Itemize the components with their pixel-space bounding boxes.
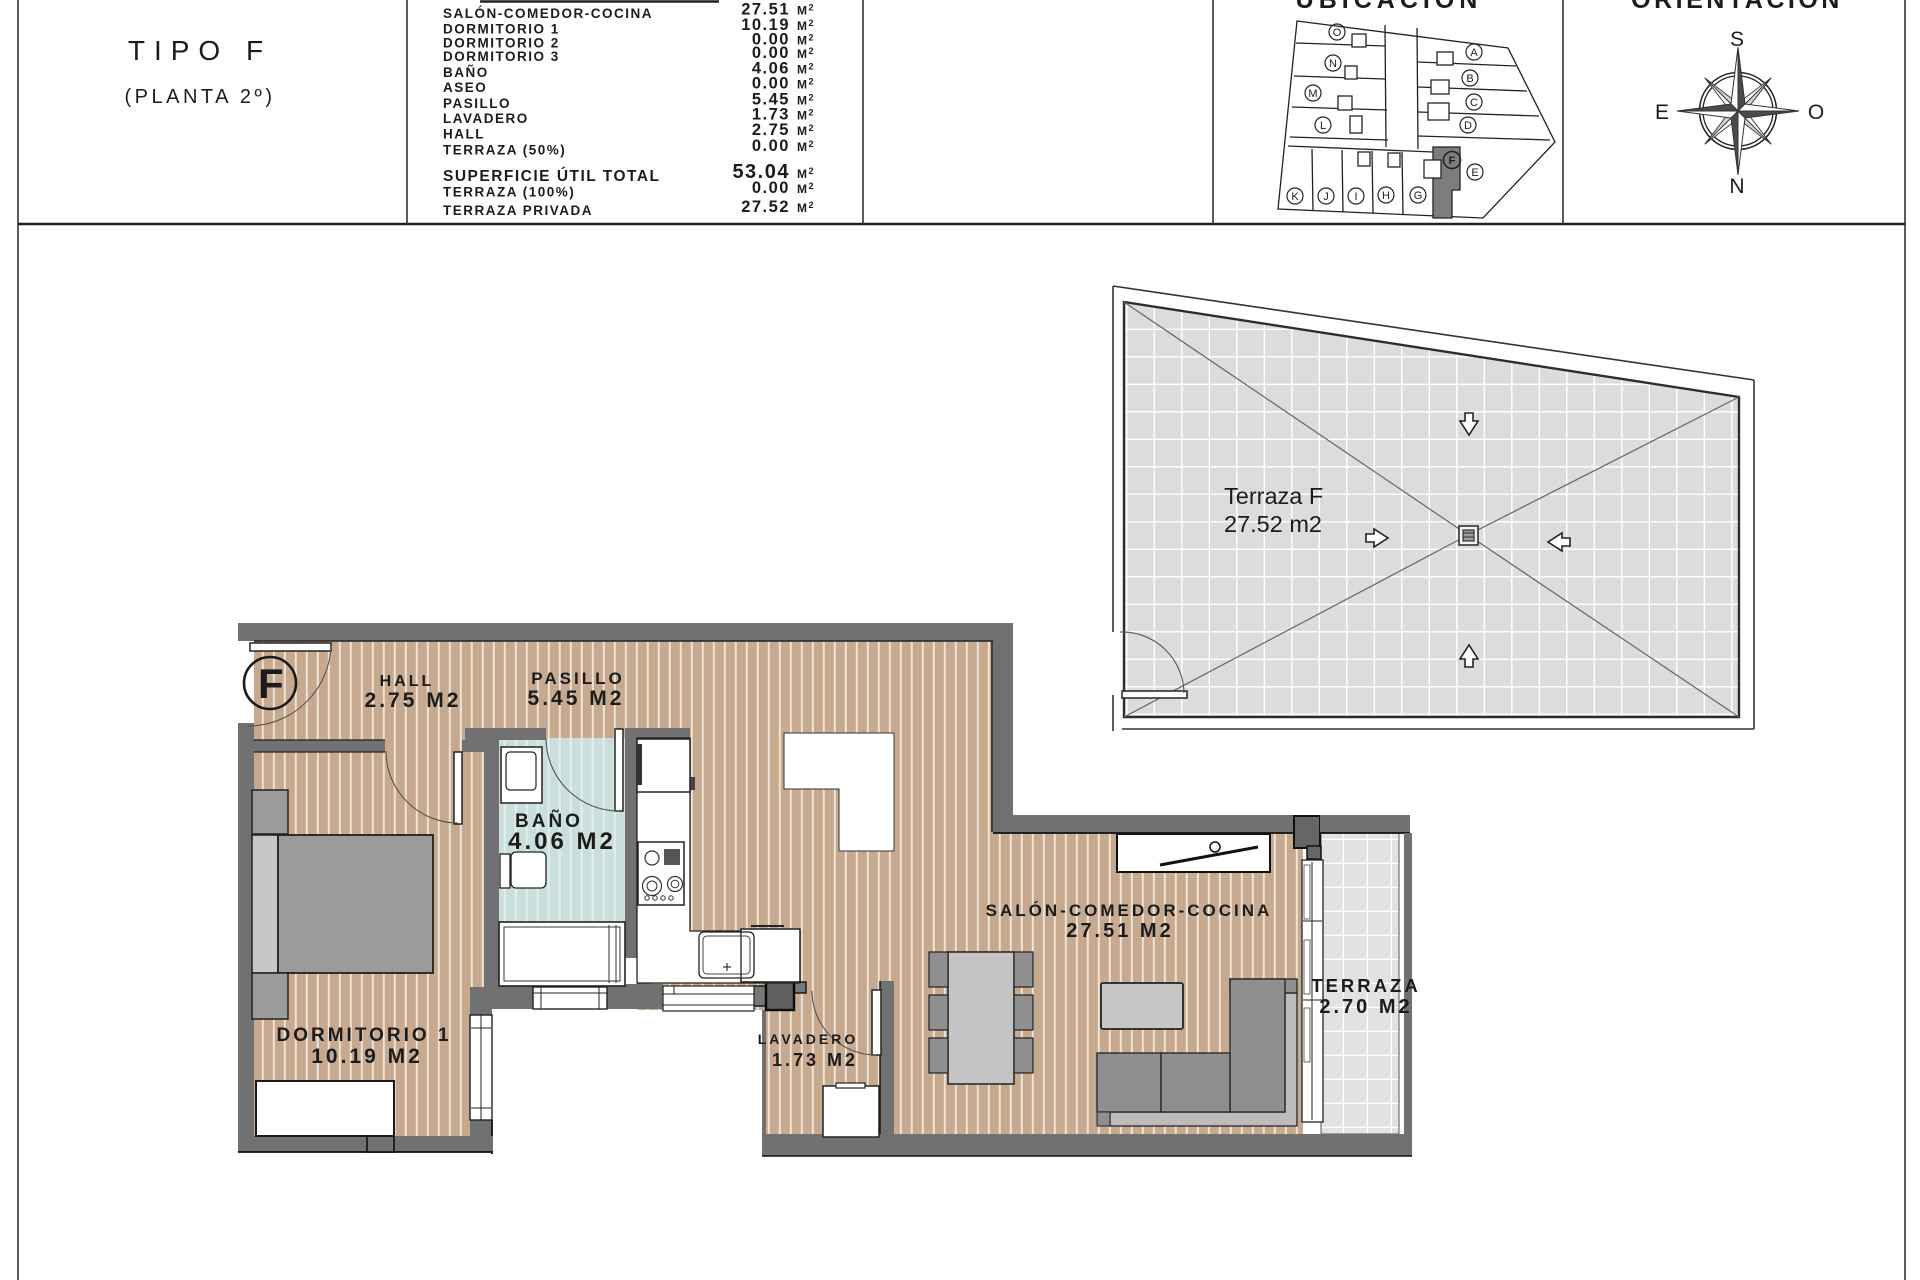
svg-text:SUPERFICIE ÚTIL TOTAL: SUPERFICIE ÚTIL TOTAL	[443, 167, 661, 185]
svg-text:DORMITORIO 3: DORMITORIO 3	[443, 49, 560, 64]
svg-text:A: A	[1470, 47, 1478, 59]
svg-text:E: E	[1471, 167, 1478, 179]
svg-text:27.51 M2: 27.51 M2	[1066, 920, 1173, 942]
svg-text:E: E	[1655, 101, 1669, 124]
svg-text:J: J	[1323, 191, 1329, 203]
svg-text:BAÑO: BAÑO	[443, 65, 489, 80]
svg-text:HALL: HALL	[443, 127, 485, 142]
svg-text:DORMITORIO 1: DORMITORIO 1	[277, 1025, 452, 1046]
svg-text:0.00: 0.00	[752, 137, 790, 155]
svg-text:TERRAZA PRIVADA: TERRAZA PRIVADA	[443, 203, 593, 218]
svg-text:2.75 M2: 2.75 M2	[365, 689, 462, 712]
svg-text:G: G	[1414, 190, 1423, 202]
svg-text:(PLANTA 2º): (PLANTA 2º)	[124, 86, 275, 108]
svg-text:F: F	[1449, 155, 1456, 167]
svg-text:27.52 m2: 27.52 m2	[1224, 511, 1322, 537]
svg-text:TIPO F: TIPO F	[128, 35, 272, 66]
svg-text:10.19 M2: 10.19 M2	[311, 1045, 423, 1068]
svg-text:ORIENTACIÓN: ORIENTACIÓN	[1631, 0, 1843, 14]
svg-text:LAVADERO: LAVADERO	[443, 111, 529, 126]
svg-text:PASILLO: PASILLO	[443, 96, 511, 111]
svg-text:K: K	[1291, 191, 1299, 203]
svg-text:HALL: HALL	[380, 673, 435, 690]
svg-text:27.52: 27.52	[741, 198, 790, 216]
svg-text:PASILLO: PASILLO	[531, 669, 624, 688]
svg-text:O: O	[1808, 101, 1824, 124]
svg-text:4.06 M2: 4.06 M2	[508, 828, 616, 855]
svg-text:LAVADERO: LAVADERO	[758, 1031, 858, 1047]
svg-text:B: B	[1466, 73, 1473, 85]
svg-text:UBICACIÓN: UBICACIÓN	[1296, 0, 1483, 14]
svg-text:Terraza F: Terraza F	[1224, 483, 1323, 509]
svg-text:TERRAZA (50%): TERRAZA (50%)	[443, 143, 566, 158]
svg-text:F: F	[258, 660, 284, 707]
svg-text:I: I	[1354, 191, 1357, 203]
svg-text:M: M	[1308, 88, 1317, 100]
svg-text:TERRAZA: TERRAZA	[1311, 975, 1420, 996]
svg-text:H: H	[1382, 190, 1390, 202]
svg-text:SALÓN-COMEDOR-COCINA: SALÓN-COMEDOR-COCINA	[986, 901, 1273, 920]
svg-text:N: N	[1729, 175, 1744, 198]
svg-text:5.45 M2: 5.45 M2	[528, 687, 625, 710]
svg-text:TERRAZA (100%): TERRAZA (100%)	[443, 185, 575, 200]
svg-text:DORMITORIO 1: DORMITORIO 1	[443, 22, 560, 37]
svg-text:S: S	[1730, 28, 1744, 51]
svg-text:D: D	[1464, 120, 1472, 132]
svg-text:2.70 M2: 2.70 M2	[1319, 996, 1412, 1018]
svg-text:SALÓN-COMEDOR-COCINA: SALÓN-COMEDOR-COCINA	[443, 6, 653, 21]
svg-text:C: C	[1470, 97, 1478, 109]
svg-text:L: L	[1320, 120, 1326, 132]
svg-text:0.00: 0.00	[752, 179, 790, 197]
svg-text:N: N	[1329, 58, 1337, 70]
svg-text:O: O	[1333, 27, 1342, 39]
svg-text:1.73 M2: 1.73 M2	[772, 1050, 858, 1070]
svg-text:ASEO: ASEO	[443, 80, 487, 95]
